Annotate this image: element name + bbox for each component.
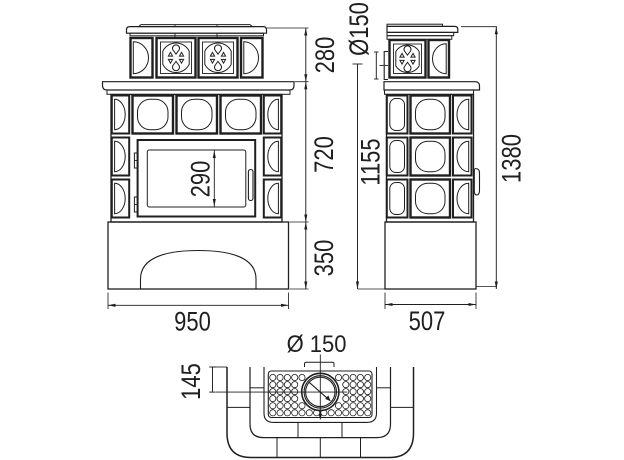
- svg-text:145: 145: [177, 363, 207, 400]
- svg-text:Ø150: Ø150: [345, 2, 375, 56]
- svg-text:1155: 1155: [357, 138, 387, 185]
- svg-text:280: 280: [311, 37, 341, 74]
- svg-text:507: 507: [409, 307, 446, 337]
- svg-text:720: 720: [310, 136, 340, 173]
- svg-text:Ø 150: Ø 150: [287, 330, 347, 357]
- svg-text:350: 350: [310, 240, 340, 277]
- svg-text:290: 290: [187, 161, 217, 198]
- svg-text:1380: 1380: [498, 134, 528, 183]
- svg-text:950: 950: [174, 308, 211, 338]
